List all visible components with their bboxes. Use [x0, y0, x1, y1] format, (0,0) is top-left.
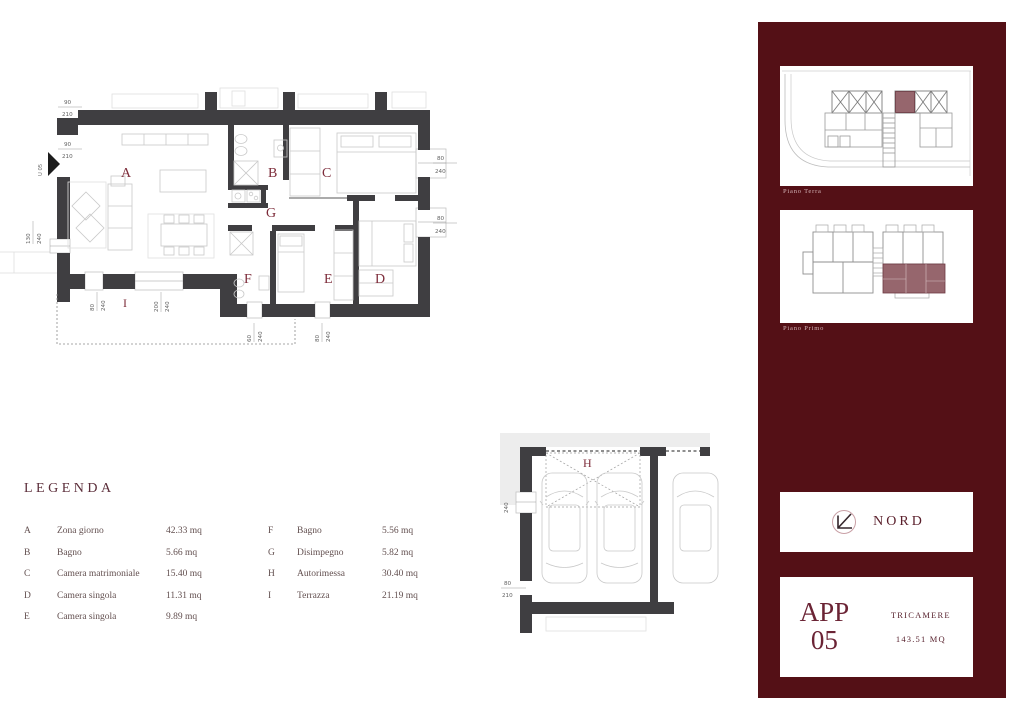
room-label-e: E [324, 272, 333, 287]
legend-row: GDisimpegno5.82 mq [268, 548, 442, 558]
room-label-h: H [583, 456, 592, 470]
apartment-area: 143.51 MQ [869, 634, 973, 644]
svg-text:240: 240 [435, 169, 446, 175]
svg-text:210: 210 [502, 593, 513, 599]
svg-text:240: 240 [504, 502, 510, 513]
sidebar: Piano Terra [758, 22, 1006, 698]
svg-text:80: 80 [504, 581, 512, 587]
svg-text:210: 210 [62, 112, 73, 118]
room-label-g: G [266, 206, 276, 221]
windows [50, 149, 446, 318]
highlighted-apartment-unit [883, 264, 945, 293]
entrance-arrow-icon [48, 152, 60, 176]
apartment-type: TRICAMERE [869, 610, 973, 620]
legend-row: HAutorimessa30.40 mq [268, 569, 442, 579]
room-label-a: A [121, 166, 132, 181]
maneuver-zone [546, 453, 640, 507]
legend: LEGENDA AZona giorno42.33 mq BBagno5.66 … [24, 481, 115, 497]
svg-text:240: 240 [435, 229, 446, 235]
apartment-card: APP 05 TRICAMERE 143.51 MQ [780, 577, 973, 677]
piano-terra-card [780, 66, 973, 186]
garage-windows [516, 492, 536, 513]
piano-primo-card [780, 210, 973, 323]
svg-text:60: 60 [247, 334, 253, 342]
room-label-d: D [375, 272, 385, 287]
north-card: NORD [780, 492, 973, 552]
svg-text:90: 90 [64, 100, 72, 106]
legend-row: FBagno5.56 mq [268, 526, 442, 536]
svg-text:130: 130 [26, 233, 32, 244]
legend-column-2: FBagno5.56 mq GDisimpegno5.82 mq HAutori… [268, 526, 442, 601]
north-label: NORD [873, 514, 925, 530]
piano-primo-miniplan [780, 210, 973, 323]
svg-text:240: 240 [258, 331, 264, 342]
apartment-info: TRICAMERE 143.51 MQ [869, 610, 973, 644]
piano-primo-label: Piano Primo [783, 325, 824, 332]
room-label-b: B [268, 166, 277, 181]
svg-text:210: 210 [62, 154, 73, 160]
piano-terra-label: Piano Terra [783, 188, 822, 195]
svg-text:240: 240 [37, 233, 43, 244]
garage-floor-plan: 240 80 210 H [490, 425, 720, 650]
apartment-floor-plan: U 05 90 210 90 210 130 240 80 240 200 24… [0, 80, 470, 370]
bathroom-b-fixtures [232, 135, 287, 203]
room-label-i: I [123, 296, 127, 310]
entrance-label: U 05 [38, 164, 44, 176]
svg-text:80: 80 [315, 334, 321, 342]
brochure-page: U 05 90 210 90 210 130 240 80 240 200 24… [0, 0, 1024, 724]
apartment-number: APP 05 [780, 599, 869, 654]
highlighted-garage-unit [896, 92, 915, 113]
north-arrow-icon [828, 506, 860, 538]
room-label-c: C [322, 166, 331, 181]
svg-text:90: 90 [64, 142, 72, 148]
living-room-furniture [68, 134, 214, 258]
svg-text:240: 240 [165, 301, 171, 312]
legend-column-1: AZona giorno42.33 mq BBagno5.66 mq CCame… [24, 526, 226, 622]
legend-row: ECamera singola9.89 mq [24, 612, 226, 622]
bedroom-c-furniture [290, 128, 416, 196]
legend-row: AZona giorno42.33 mq [24, 526, 226, 536]
entrance-marker: U 05 [38, 152, 60, 176]
bedroom-e-furniture [278, 230, 353, 300]
paving-outline [546, 617, 646, 631]
svg-text:240: 240 [101, 300, 107, 311]
svg-text:80: 80 [90, 303, 96, 311]
legend-row: DCamera singola11.31 mq [24, 591, 226, 601]
svg-text:240: 240 [326, 331, 332, 342]
svg-text:200: 200 [154, 301, 160, 312]
garage-walls [520, 447, 710, 633]
svg-text:80: 80 [437, 156, 445, 162]
parked-cars [540, 473, 718, 583]
legend-title: LEGENDA [24, 481, 115, 497]
legend-row: ITerrazza21.19 mq [268, 591, 442, 601]
bedroom-d-furniture [359, 221, 416, 296]
legend-row: BBagno5.66 mq [24, 548, 226, 558]
piano-terra-miniplan [780, 66, 973, 186]
legend-row: CCamera matrimoniale15.40 mq [24, 569, 226, 579]
room-label-f: F [244, 272, 252, 287]
svg-text:80: 80 [437, 216, 445, 222]
